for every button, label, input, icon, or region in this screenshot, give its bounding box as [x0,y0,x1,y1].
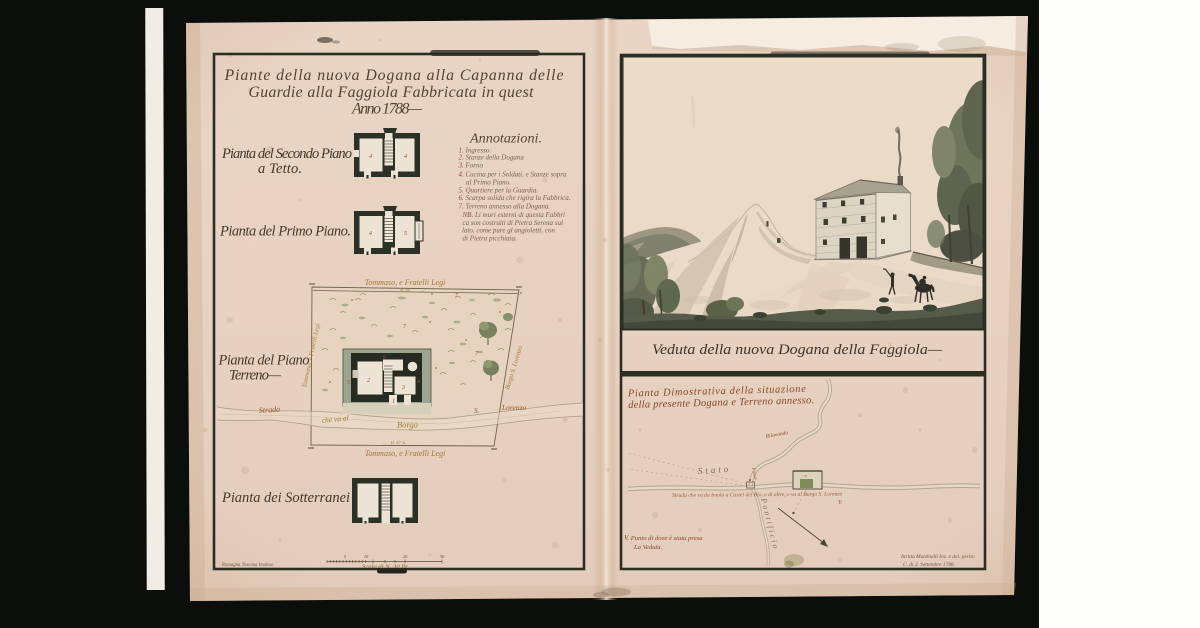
svg-text:D. 60: D. 60 [399,288,411,293]
svg-text:lato, come pure gl angioletti,: lato, come pure gl angioletti, con [462,227,555,235]
svg-text:3. Forno: 3. Forno [458,162,484,170]
svg-text:Guardie alla Faggiola Fabbrica: Guardie alla Faggiola Fabbricata in ques… [249,84,535,101]
svg-text:6. Scarpa solida che rigira la: 6. Scarpa solida che rigira la Fabbrica. [459,194,571,202]
svg-text:Veduta della nuova Dogana dell: Veduta della nuova Dogana della Faggiola… [652,342,943,358]
svg-text:V. Punto di dove è stata presa: V. Punto di dove è stata presa [624,534,703,542]
svg-text:D. 47 ¾: D. 47 ¾ [390,440,406,445]
svg-text:di Pietra picchiata.: di Pietra picchiata. [463,235,517,243]
svg-text:Pianta dei Sotterranei: Pianta dei Sotterranei [221,490,350,506]
svg-text:4. Cucina per i Soldati, e Sta: 4. Cucina per i Soldati, e Stanze sopra [459,171,567,179]
svg-text:5: 5 [404,231,407,237]
svg-text:Anno 1788—: Anno 1788— [351,101,423,118]
svg-text:C. di 2. Settembre 1788.: C. di 2. Settembre 1788. [903,562,955,568]
svg-text:4: 4 [404,153,407,160]
svg-text:3: 3 [401,385,405,391]
svg-text:Piante della nuova Dogana alla: Piante della nuova Dogana alla Capanna d… [224,67,564,84]
svg-text:Terreno—: Terreno— [229,368,281,384]
svg-text:NB. Li muri esterni di questa: NB. Li muri esterni di questa Fabbri [462,211,566,219]
svg-text:V.: V. [838,500,843,506]
svg-text:2: 2 [367,378,370,384]
svg-text:20: 20 [403,554,408,559]
svg-text:6: 6 [383,355,386,361]
svg-text:La Veduta.: La Veduta. [633,544,663,551]
svg-text:1: 1 [392,399,395,405]
svg-text:al Primo Piano.: al Primo Piano. [466,179,511,187]
svg-text:2. Stanze della Dogana: 2. Stanze della Dogana [459,154,525,162]
svg-text:S.: S. [474,407,480,415]
svg-text:178: 178 [802,474,808,478]
svg-text:Tommaso, e Fratelli Legi: Tommaso, e Fratelli Legi [365,449,446,458]
svg-text:4: 4 [369,230,372,237]
svg-text:4: 4 [417,378,420,385]
svg-text:4: 4 [369,153,372,160]
svg-text:Annotazioni.: Annotazioni. [469,132,542,147]
svg-text:a Tetto.: a Tetto. [258,161,302,177]
svg-text:Romagna Toscana Imolese: Romagna Toscana Imolese [221,563,274,568]
svg-text:Pianta del Piano: Pianta del Piano [218,353,310,369]
svg-text:5: 5 [347,380,350,386]
svg-text:Inritta Martinelli Inz. e del.: Inritta Martinelli Inz. e del. perito [900,554,975,560]
svg-text:Strada: Strada [259,405,281,415]
svg-text:Pianta del Secondo Piano: Pianta del Secondo Piano [221,146,352,162]
svg-text:Pianta del Primo Piano.: Pianta del Primo Piano. [219,224,351,240]
svg-text:7. Terreno annesso alla Dogana: 7. Terreno annesso alla Dogana. [459,203,551,211]
svg-text:Tommaso, e Fratelli Legi: Tommaso, e Fratelli Legi [365,278,446,287]
svg-text:Lorenzo: Lorenzo [501,403,527,412]
svg-text:Borgo: Borgo [397,420,418,430]
svg-text:10: 10 [364,554,369,559]
svg-text:30: 30 [440,554,445,559]
